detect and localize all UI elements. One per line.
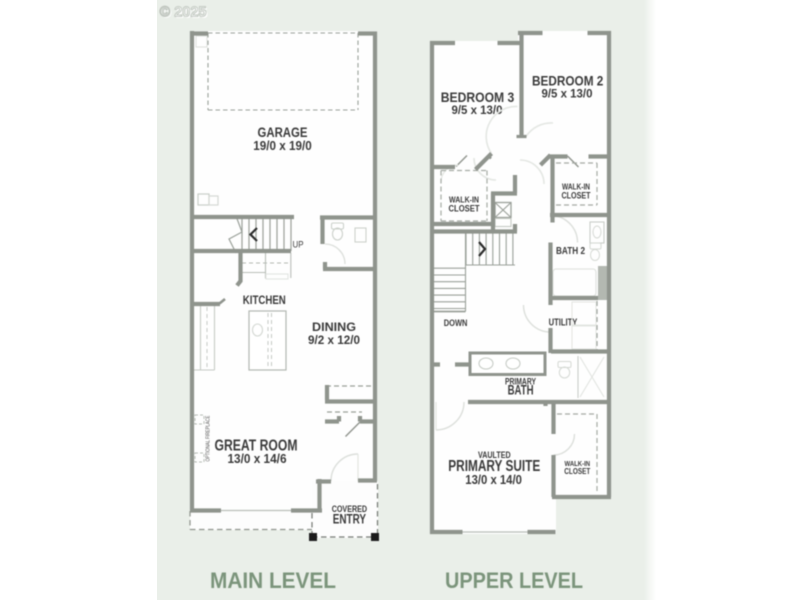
svg-text:KITCHEN: KITCHEN — [243, 293, 286, 307]
svg-text:BATH 2: BATH 2 — [556, 245, 585, 257]
svg-text:BATH: BATH — [508, 383, 534, 398]
svg-text:CLOSET: CLOSET — [564, 466, 591, 476]
svg-text:DOWN: DOWN — [444, 318, 468, 329]
svg-text:9/2 x 12/0: 9/2 x 12/0 — [308, 335, 360, 347]
svg-text:UPPER LEVEL: UPPER LEVEL — [445, 568, 583, 593]
svg-text:CLOSET: CLOSET — [562, 191, 591, 202]
svg-text:9/5 x 13/0: 9/5 x 13/0 — [542, 87, 593, 101]
svg-text:13/0 x 14/6: 13/0 x 14/6 — [228, 451, 287, 466]
svg-text:UP: UP — [293, 240, 304, 251]
svg-text:ENTRY: ENTRY — [333, 511, 366, 526]
svg-text:13/0 x 14/0: 13/0 x 14/0 — [465, 472, 522, 487]
svg-text:OPTIONAL FIREPLACE: OPTIONAL FIREPLACE — [206, 415, 212, 461]
svg-text:19/0 x 19/0: 19/0 x 19/0 — [253, 138, 312, 153]
svg-text:© 2025: © 2025 — [160, 5, 207, 21]
svg-text:MAIN LEVEL: MAIN LEVEL — [210, 568, 336, 593]
svg-text:DINING: DINING — [312, 322, 356, 334]
svg-text:CLOSET: CLOSET — [449, 204, 480, 215]
